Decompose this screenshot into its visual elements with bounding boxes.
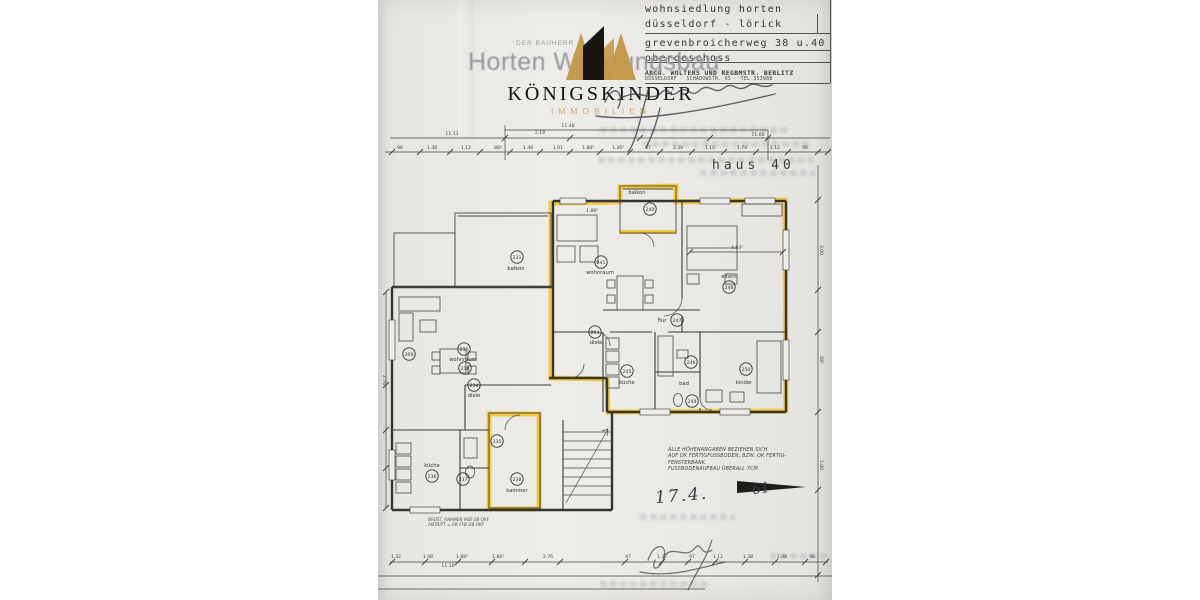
parapet-note: BRÜST. RAHMEN 90B ÜB OKFANTRITT = OK FFB…: [428, 517, 489, 528]
handwritten-year: 61: [751, 480, 771, 499]
house-label: haus 40: [712, 158, 795, 173]
crown-logo-icon: [566, 26, 636, 80]
brand-name: KÖNIGSKINDER: [500, 83, 702, 106]
height-note: ALLE HÖHENANGABEN BEZIEHEN SICHAUF OK FE…: [668, 448, 786, 474]
scanned-floorplan-sheet: 240balkon241wohnraum248eltern250kinder24…: [0, 0, 1200, 600]
brand-subtitle: IMMOBILIEN: [500, 106, 702, 116]
